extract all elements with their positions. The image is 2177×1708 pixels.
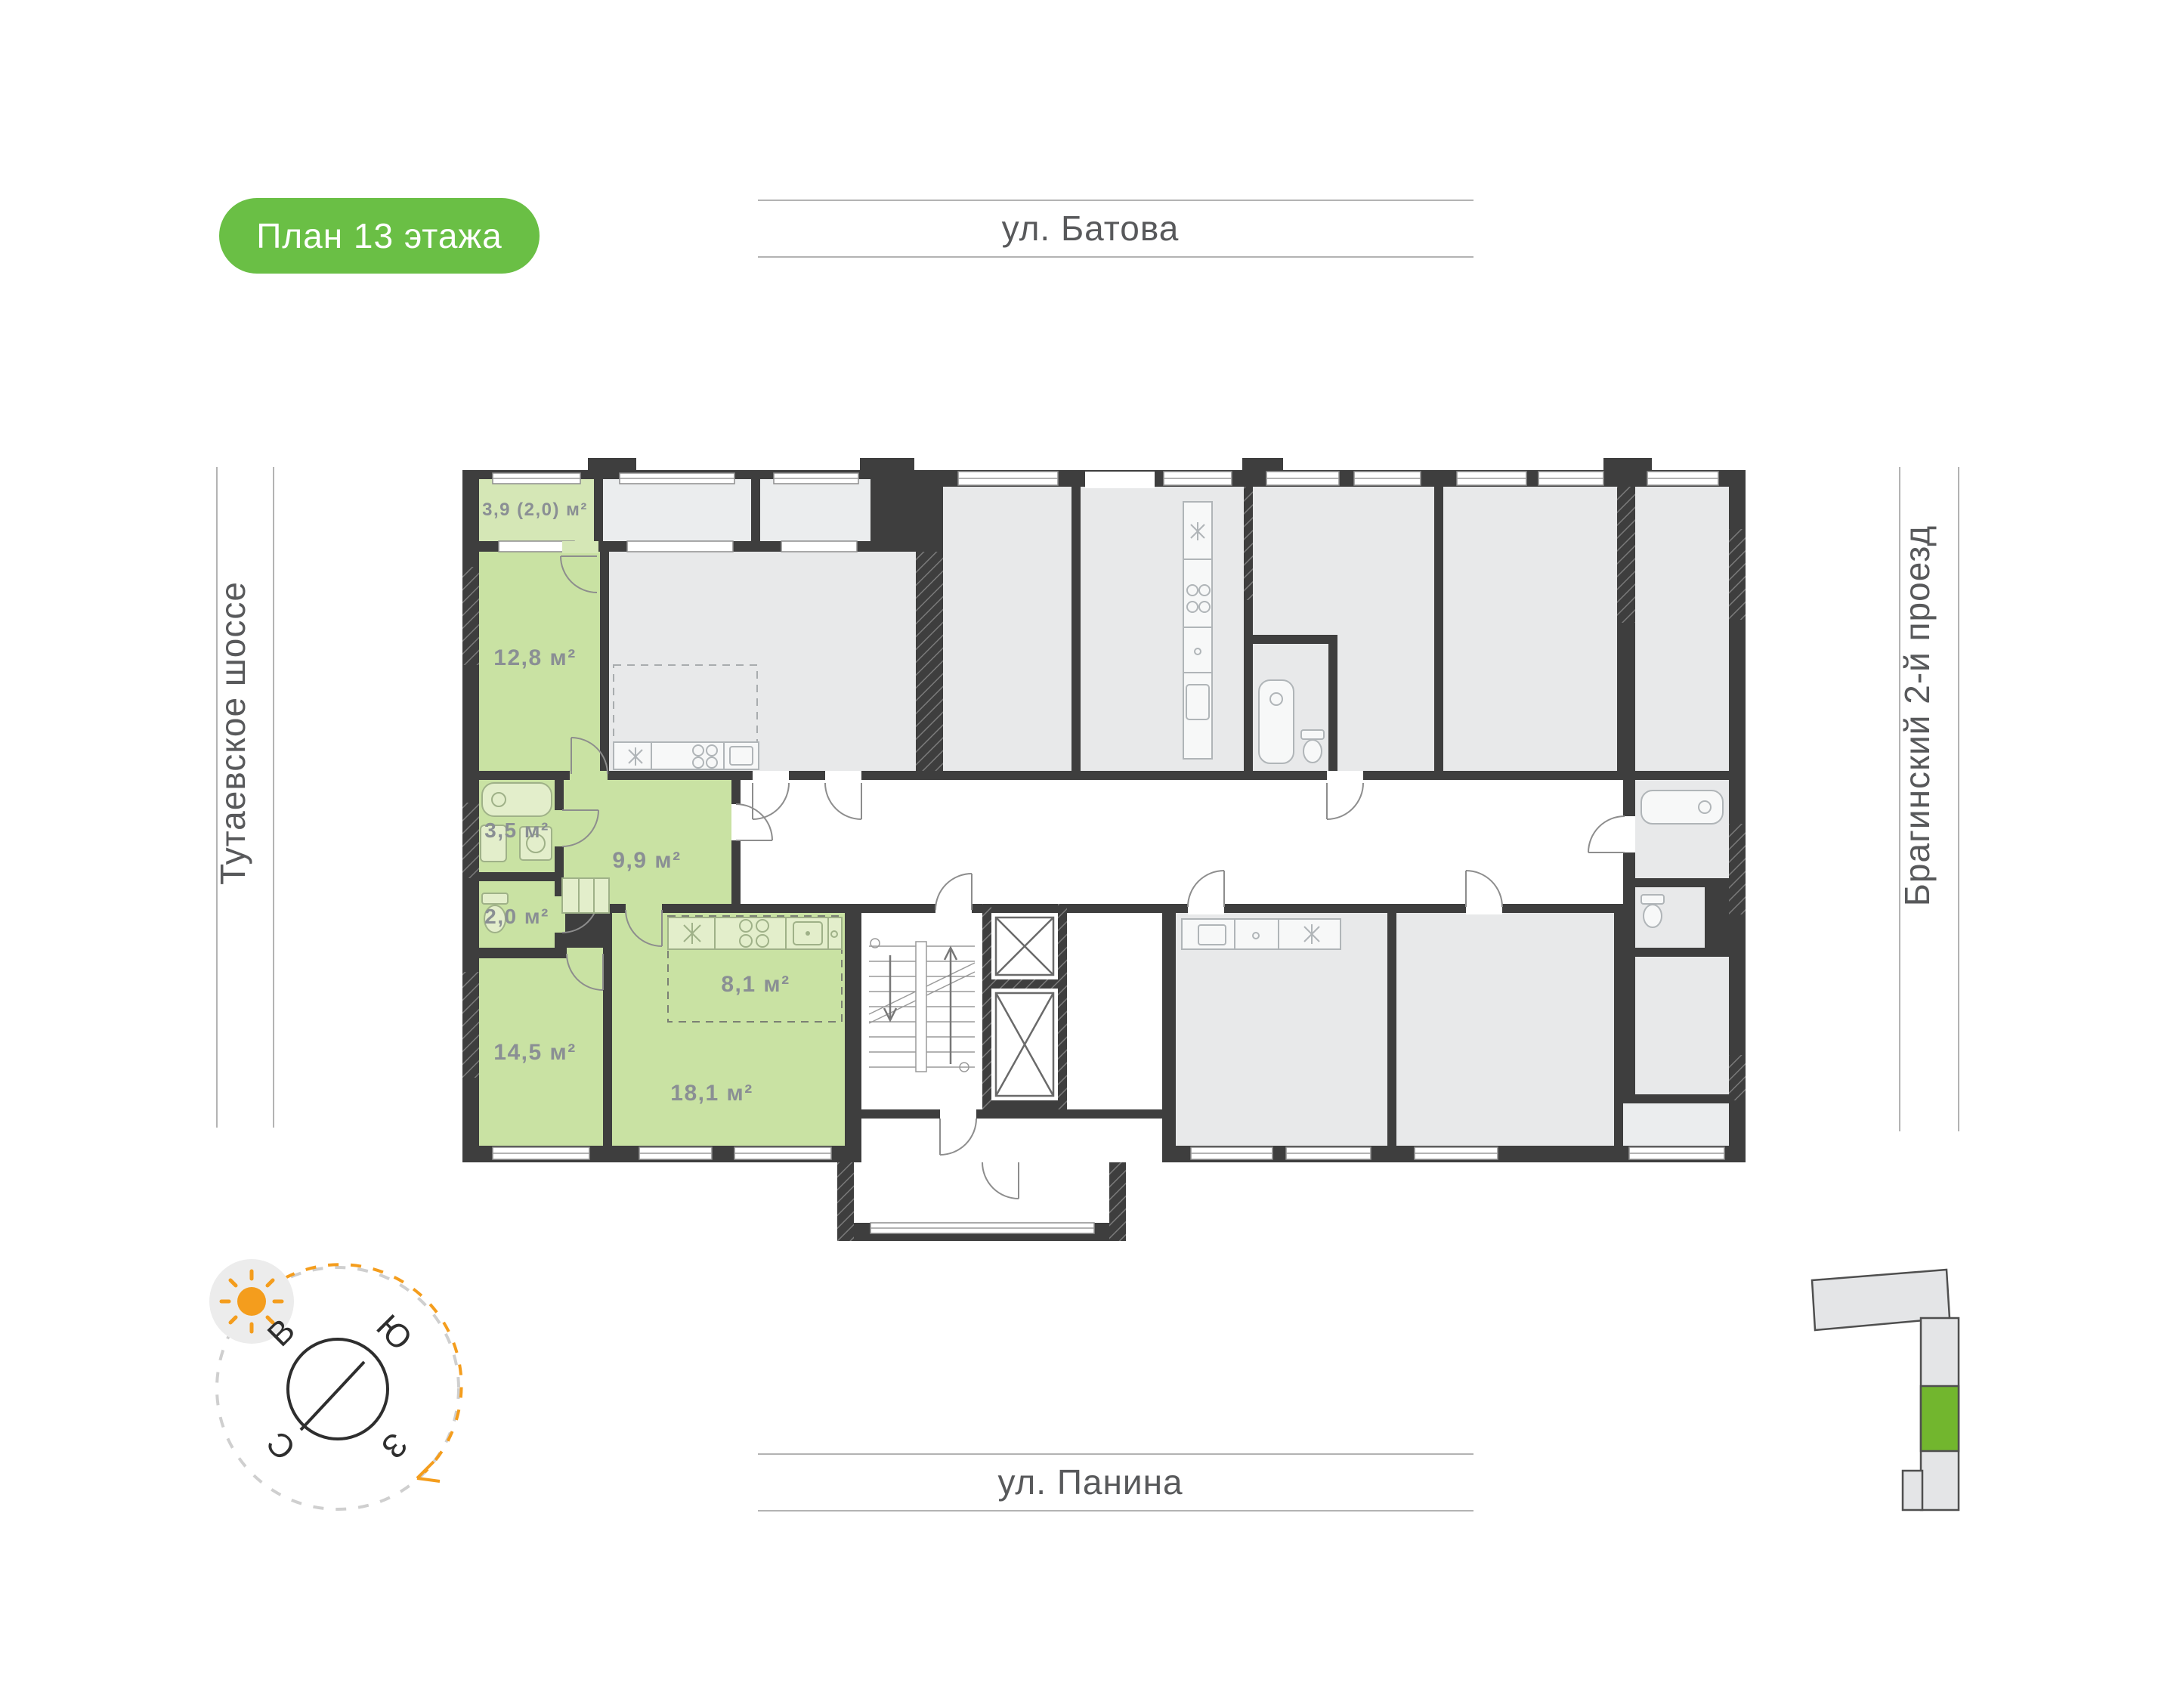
hatched-wall <box>1058 904 1067 1109</box>
street-right-label: Брагинский 2-й проезд <box>1897 525 1937 906</box>
hatched-wall <box>1244 487 1253 600</box>
vestibule <box>861 1119 1162 1162</box>
hatched-wall <box>1729 824 1746 914</box>
hatched-wall <box>1729 1055 1746 1100</box>
hatched-wall <box>1729 529 1746 620</box>
wall-tab <box>1603 458 1652 470</box>
minimap-highlighted-section[interactable] <box>1921 1386 1959 1451</box>
kitchen-gray-1 <box>614 742 759 769</box>
floor-plan-page: План 13 этажа ул. Батова ул. Панина Тута… <box>0 0 2177 1708</box>
gray-room <box>1635 957 1729 1094</box>
street-right: Брагинский 2-й проезд <box>1897 467 1959 1131</box>
compass-north: С <box>260 1424 303 1467</box>
gray-room <box>1396 913 1614 1146</box>
gray-room <box>1443 487 1617 771</box>
hatched-wall <box>1617 487 1635 623</box>
kitchen-green <box>668 917 842 949</box>
hatched-wall <box>462 972 479 1078</box>
interior-wall <box>1253 635 1336 644</box>
compass-west: З <box>374 1425 414 1465</box>
gray-room <box>1635 487 1729 771</box>
compass-south: Ю <box>370 1307 419 1357</box>
gray-room <box>609 552 916 771</box>
hatched-wall <box>462 803 479 878</box>
gray-balcony-bottom <box>1623 1103 1729 1146</box>
room-area-living-kitchen: 18,1 м² <box>670 1081 753 1106</box>
interior-wall <box>1328 635 1337 771</box>
street-left: Тутаевское шоссе <box>213 467 274 1128</box>
wall-tab <box>1242 458 1283 470</box>
street-top: ул. Батова <box>758 200 1473 257</box>
room-area-bedroom-1: 12,8 м² <box>493 645 576 670</box>
hatched-wall <box>837 1162 854 1241</box>
room-area-hallway: 9,9 м² <box>612 848 681 873</box>
hatched-wall <box>1109 1162 1126 1241</box>
compass: В Ю З С <box>209 1259 462 1509</box>
wardrobe-icon <box>562 878 609 913</box>
hatched-wall <box>916 552 943 771</box>
elevator-lobby <box>1067 913 1162 1109</box>
toilet-icon <box>482 893 508 904</box>
toilet-icon <box>1301 730 1324 739</box>
hatched-wall <box>982 904 991 1109</box>
wall-tab <box>860 458 914 470</box>
floor-badge: План 13 этажа <box>219 198 540 274</box>
minimap-wing-bottom <box>1903 1471 1922 1510</box>
gray-room <box>1081 487 1244 771</box>
toilet-icon <box>1641 895 1664 904</box>
street-bottom-label: ул. Панина <box>997 1462 1183 1502</box>
gray-balcony <box>603 479 751 541</box>
room-area-bathroom: 3,5 м² <box>484 818 549 842</box>
kitchen-gray-2 <box>1183 502 1212 759</box>
street-left-label: Тутаевское шоссе <box>213 581 252 885</box>
street-bottom: ул. Панина <box>758 1454 1473 1511</box>
common-corridor <box>741 780 1623 904</box>
building-plan: 3,9 (2,0) м² 12,8 м² 3,5 м² 2,0 м² 9,9 м… <box>462 458 1746 1241</box>
loggia-recess <box>1085 472 1155 488</box>
kitchen-gray-3 <box>1182 919 1341 949</box>
room-area-balcony: 3,9 (2,0) м² <box>482 500 588 520</box>
room-area-kitchen-zone: 8,1 м² <box>721 972 790 997</box>
hatched-wall <box>462 567 479 665</box>
entrance-lobby <box>854 1162 1109 1223</box>
floor-badge-label: План 13 этажа <box>256 216 503 255</box>
sun-path-arrow <box>417 1462 440 1481</box>
room-area-wc: 2,0 м² <box>484 905 549 928</box>
minimap <box>1812 1270 1959 1510</box>
gray-room <box>943 487 1071 771</box>
room-area-bedroom-2: 14,5 м² <box>493 1040 576 1065</box>
wall-tab <box>588 458 636 470</box>
street-top-label: ул. Батова <box>1002 209 1180 248</box>
hatched-wall <box>991 979 1058 989</box>
gray-balcony <box>760 479 870 541</box>
